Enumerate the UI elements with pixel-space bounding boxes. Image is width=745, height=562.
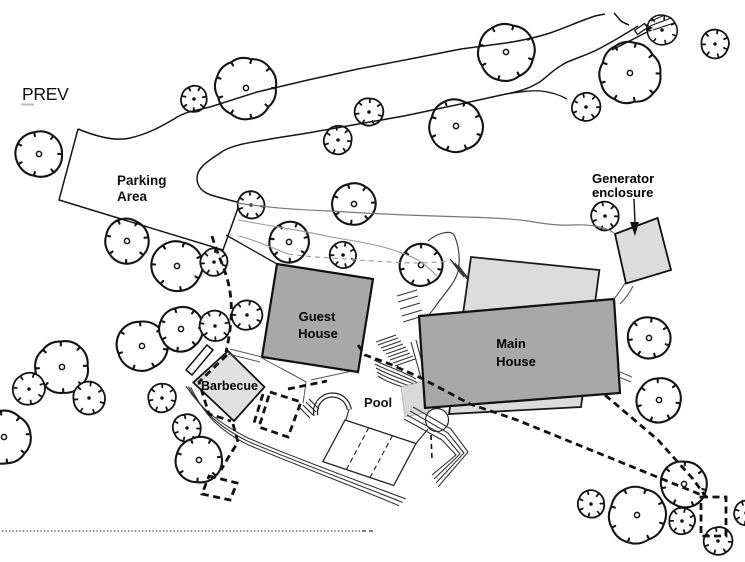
- svg-text:House: House: [496, 354, 536, 369]
- svg-text:PREV: PREV: [22, 84, 69, 104]
- svg-text:Area: Area: [117, 189, 148, 204]
- svg-text:Main: Main: [496, 336, 526, 351]
- svg-text:enclosure: enclosure: [592, 185, 653, 200]
- svg-text:Parking: Parking: [117, 173, 167, 188]
- svg-text:Barbecue: Barbecue: [201, 379, 258, 393]
- svg-text:Guest: Guest: [299, 309, 337, 324]
- svg-text:Pool: Pool: [364, 395, 392, 410]
- svg-text:Generator: Generator: [592, 171, 654, 186]
- svg-text:House: House: [298, 326, 338, 341]
